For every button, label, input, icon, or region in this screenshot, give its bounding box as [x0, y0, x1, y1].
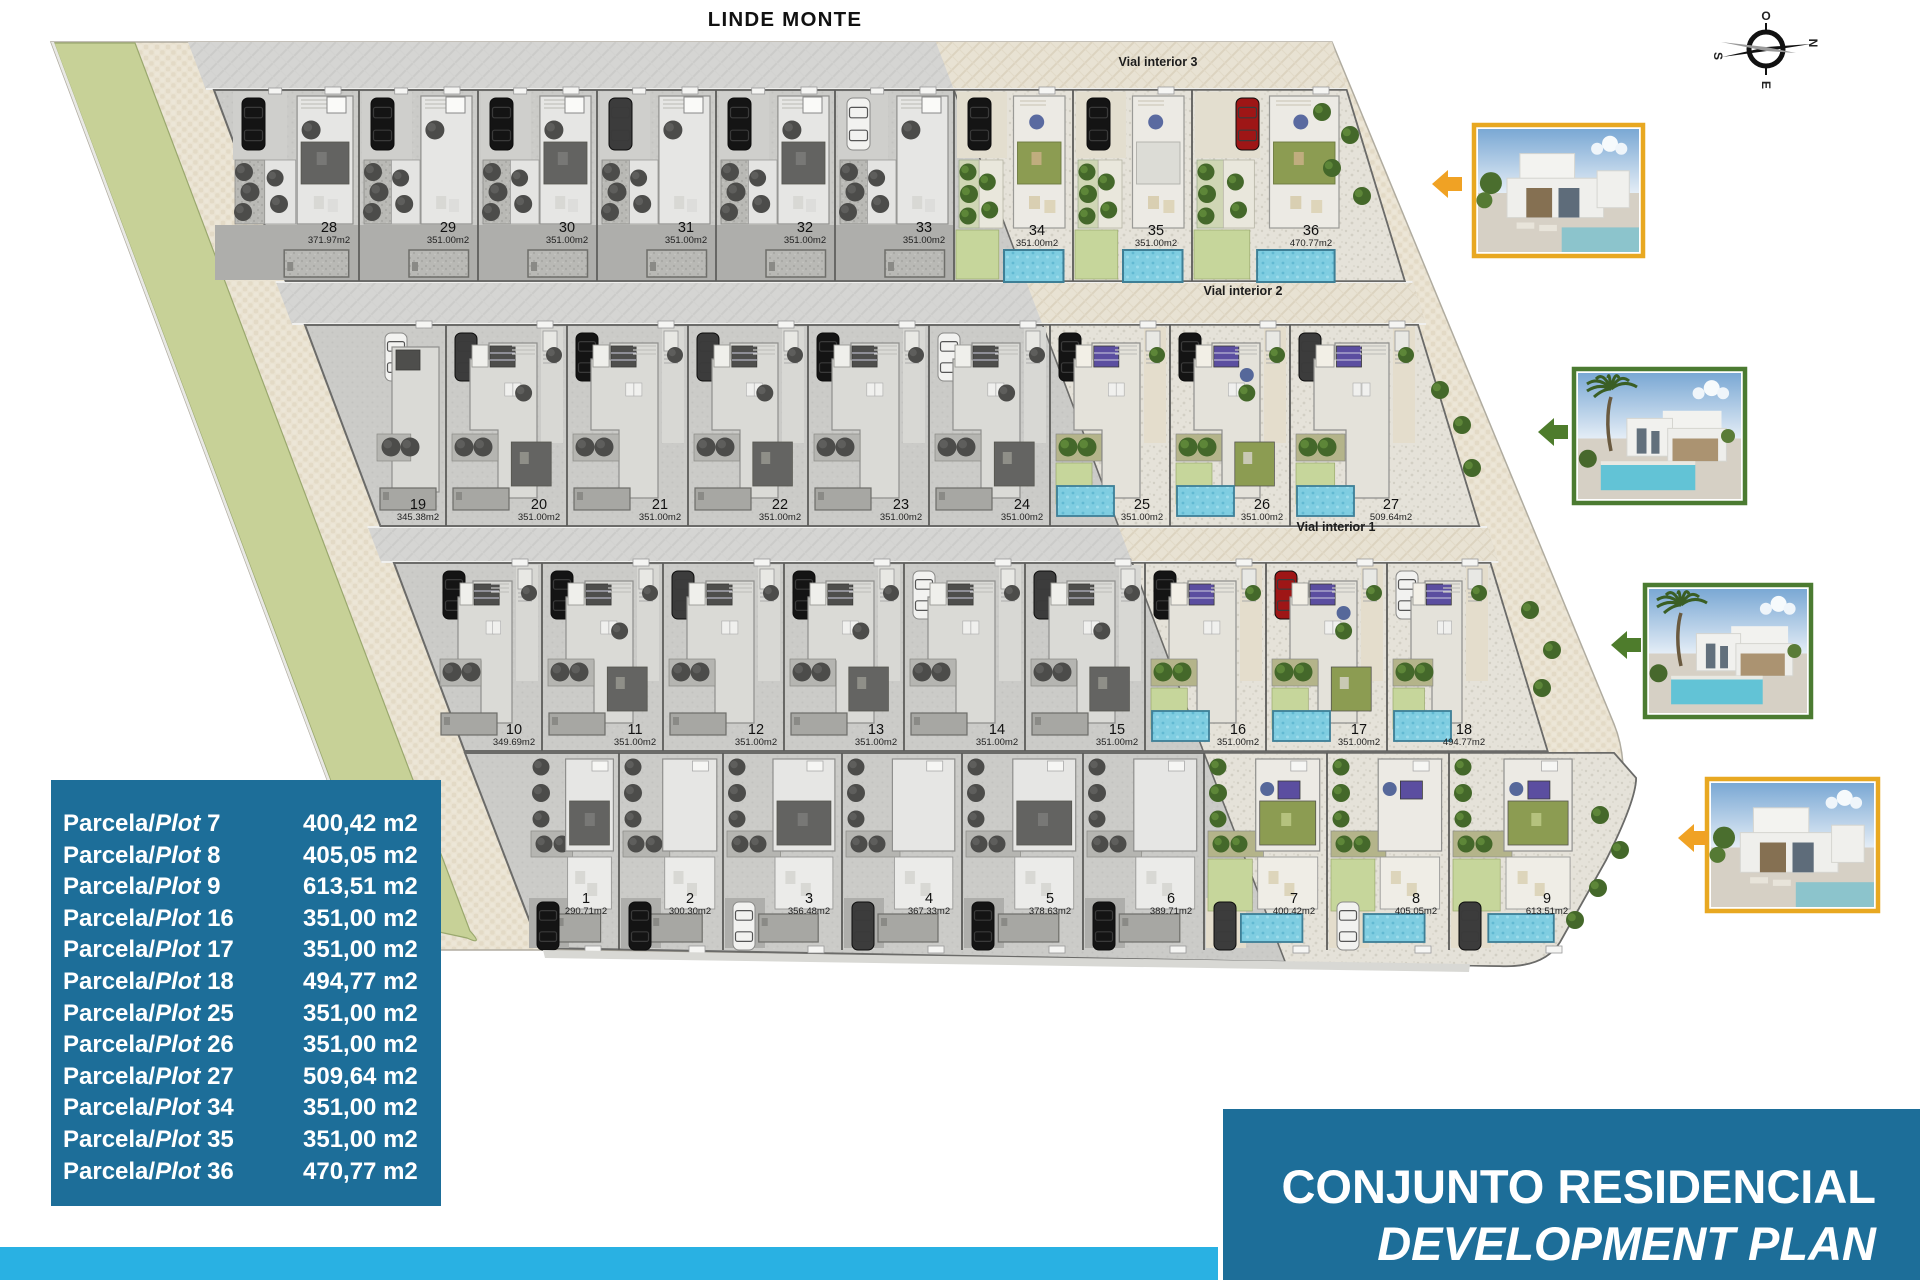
svg-text:5: 5: [1046, 891, 1054, 907]
svg-text:33: 33: [916, 220, 932, 236]
svg-text:6: 6: [1167, 891, 1175, 907]
svg-text:8: 8: [1412, 891, 1420, 907]
svg-text:Parcela/Plot 17: Parcela/Plot 17: [63, 936, 234, 963]
svg-text:34: 34: [1029, 223, 1045, 239]
svg-text:Parcela/Plot 25: Parcela/Plot 25: [63, 1000, 234, 1027]
svg-text:345.38m2: 345.38m2: [397, 512, 439, 523]
svg-text:10: 10: [506, 722, 522, 738]
svg-text:351.00m2: 351.00m2: [976, 737, 1018, 748]
svg-text:Parcela/Plot 16: Parcela/Plot 16: [63, 905, 234, 932]
svg-text:371.97m2: 371.97m2: [308, 235, 350, 246]
svg-text:CONJUNTO RESIDENCIAL: CONJUNTO RESIDENCIAL: [1281, 1160, 1876, 1213]
svg-text:Parcela/Plot 7: Parcela/Plot 7: [63, 810, 220, 837]
svg-text:509.64m2: 509.64m2: [1370, 512, 1412, 523]
svg-text:24: 24: [1014, 497, 1030, 513]
svg-text:Parcela/Plot 27: Parcela/Plot 27: [63, 1063, 234, 1090]
svg-text:351.00m2: 351.00m2: [1016, 238, 1058, 249]
svg-text:351.00m2: 351.00m2: [759, 512, 801, 523]
svg-text:19: 19: [410, 497, 426, 513]
svg-text:Parcela/Plot 26: Parcela/Plot 26: [63, 1031, 234, 1058]
svg-text:Parcela/Plot 35: Parcela/Plot 35: [63, 1126, 234, 1153]
svg-text:Parcela/Plot 9: Parcela/Plot 9: [63, 873, 220, 900]
svg-text:7: 7: [1290, 891, 1298, 907]
svg-text:367.33m2: 367.33m2: [908, 906, 950, 917]
svg-text:351.00m2: 351.00m2: [1135, 238, 1177, 249]
svg-text:290.71m2: 290.71m2: [565, 906, 607, 917]
svg-text:494.77m2: 494.77m2: [1443, 737, 1485, 748]
svg-text:15: 15: [1109, 722, 1125, 738]
svg-text:351.00m2: 351.00m2: [1217, 737, 1259, 748]
svg-text:LINDE MONTE: LINDE MONTE: [708, 8, 862, 31]
svg-text:351.00m2: 351.00m2: [1121, 512, 1163, 523]
svg-text:12: 12: [748, 722, 764, 738]
svg-text:509,64 m2: 509,64 m2: [303, 1063, 418, 1090]
svg-text:11: 11: [627, 722, 642, 738]
svg-text:Parcela/Plot 36: Parcela/Plot 36: [63, 1158, 234, 1185]
svg-text:351.00m2: 351.00m2: [1241, 512, 1283, 523]
svg-text:23: 23: [893, 497, 909, 513]
svg-text:9: 9: [1543, 891, 1551, 907]
svg-text:613.51m2: 613.51m2: [1526, 906, 1568, 917]
svg-text:351.00m2: 351.00m2: [518, 512, 560, 523]
svg-text:405,05 m2: 405,05 m2: [303, 842, 418, 869]
svg-text:Vial interior 1: Vial interior 1: [1297, 520, 1376, 534]
svg-text:13: 13: [868, 722, 884, 738]
svg-text:18: 18: [1456, 722, 1472, 738]
svg-text:351,00 m2: 351,00 m2: [303, 1094, 418, 1121]
svg-text:351.00m2: 351.00m2: [880, 512, 922, 523]
svg-text:349.69m2: 349.69m2: [493, 737, 535, 748]
svg-text:O: O: [1761, 9, 1770, 23]
svg-text:613,51 m2: 613,51 m2: [303, 873, 418, 900]
svg-text:351.00m2: 351.00m2: [427, 235, 469, 246]
svg-text:351.00m2: 351.00m2: [639, 512, 681, 523]
svg-text:470.77m2: 470.77m2: [1290, 238, 1332, 249]
svg-text:378.63m2: 378.63m2: [1029, 906, 1071, 917]
svg-text:300.30m2: 300.30m2: [669, 906, 711, 917]
svg-text:351.00m2: 351.00m2: [546, 235, 588, 246]
svg-text:389.71m2: 389.71m2: [1150, 906, 1192, 917]
svg-text:351,00 m2: 351,00 m2: [303, 905, 418, 932]
svg-text:25: 25: [1134, 497, 1150, 513]
svg-text:32: 32: [797, 220, 813, 236]
svg-text:351.00m2: 351.00m2: [614, 737, 656, 748]
svg-text:470,77 m2: 470,77 m2: [303, 1158, 418, 1185]
svg-text:Vial interior 3: Vial interior 3: [1119, 55, 1198, 69]
svg-text:26: 26: [1254, 497, 1270, 513]
svg-text:351.00m2: 351.00m2: [1338, 737, 1380, 748]
svg-text:351.00m2: 351.00m2: [665, 235, 707, 246]
svg-text:400,42 m2: 400,42 m2: [303, 810, 418, 837]
svg-text:30: 30: [559, 220, 575, 236]
svg-text:494,77 m2: 494,77 m2: [303, 968, 418, 995]
svg-text:DEVELOPMENT PLAN: DEVELOPMENT PLAN: [1377, 1217, 1877, 1270]
svg-text:4: 4: [925, 891, 933, 907]
svg-text:Parcela/Plot 18: Parcela/Plot 18: [63, 968, 234, 995]
svg-text:29: 29: [440, 220, 456, 236]
svg-text:351,00 m2: 351,00 m2: [303, 1000, 418, 1027]
svg-text:21: 21: [652, 497, 668, 513]
svg-text:405.05m2: 405.05m2: [1395, 906, 1437, 917]
svg-text:400.42m2: 400.42m2: [1273, 906, 1315, 917]
svg-text:31: 31: [678, 220, 694, 236]
svg-text:35: 35: [1148, 223, 1164, 239]
svg-text:351.00m2: 351.00m2: [735, 737, 777, 748]
svg-text:16: 16: [1230, 722, 1246, 738]
svg-text:1: 1: [582, 891, 590, 907]
svg-text:Vial interior 2: Vial interior 2: [1204, 284, 1283, 298]
svg-text:351,00 m2: 351,00 m2: [303, 1031, 418, 1058]
svg-text:20: 20: [531, 497, 547, 513]
svg-text:351,00 m2: 351,00 m2: [303, 1126, 418, 1153]
svg-text:S: S: [1711, 52, 1725, 60]
svg-text:351.00m2: 351.00m2: [784, 235, 826, 246]
svg-text:Parcela/Plot 8: Parcela/Plot 8: [63, 842, 220, 869]
svg-text:351.00m2: 351.00m2: [903, 235, 945, 246]
svg-text:3: 3: [805, 891, 813, 907]
svg-text:27: 27: [1383, 497, 1399, 513]
svg-text:Parcela/Plot 34: Parcela/Plot 34: [63, 1094, 234, 1121]
svg-text:28: 28: [321, 220, 337, 236]
svg-text:22: 22: [772, 497, 788, 513]
svg-text:14: 14: [989, 722, 1005, 738]
svg-text:17: 17: [1351, 722, 1367, 738]
svg-text:2: 2: [686, 891, 694, 907]
svg-text:351.00m2: 351.00m2: [855, 737, 897, 748]
svg-text:356.48m2: 356.48m2: [788, 906, 830, 917]
svg-text:351,00 m2: 351,00 m2: [303, 936, 418, 963]
svg-text:E: E: [1759, 81, 1773, 89]
svg-text:36: 36: [1303, 223, 1319, 239]
svg-text:351.00m2: 351.00m2: [1001, 512, 1043, 523]
svg-text:351.00m2: 351.00m2: [1096, 737, 1138, 748]
svg-text:N: N: [1806, 39, 1820, 48]
